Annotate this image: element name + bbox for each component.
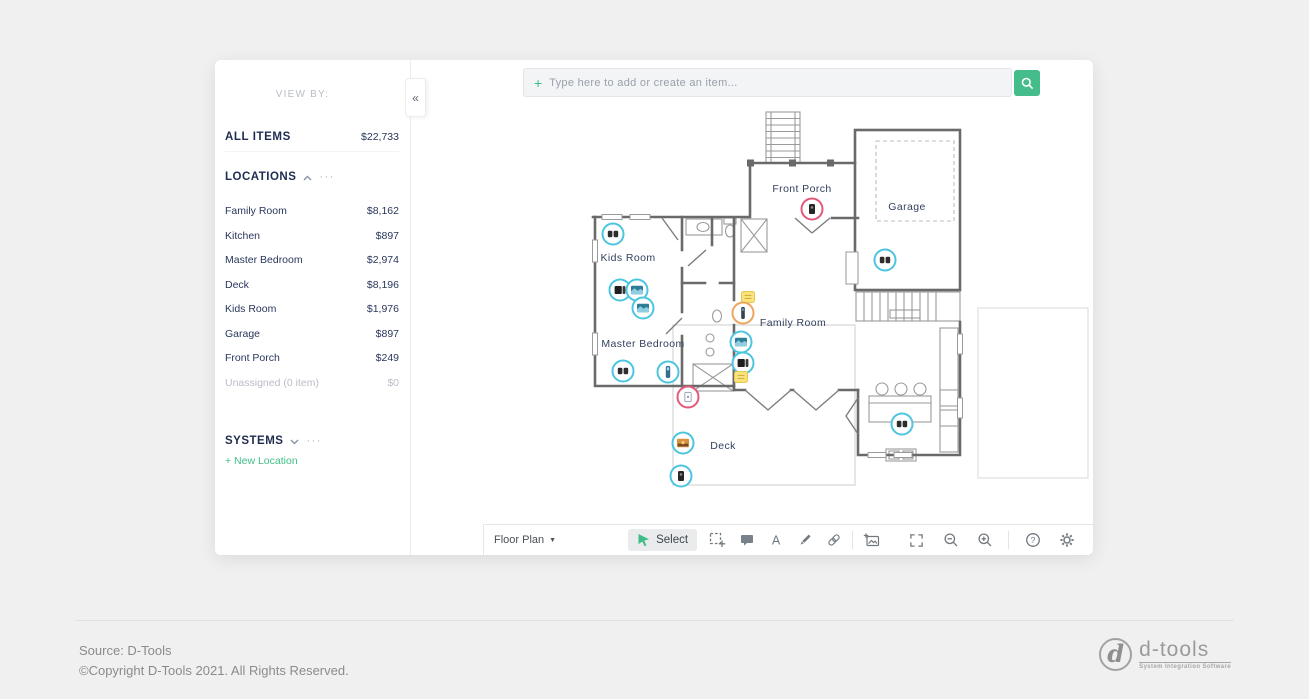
location-value: $897 <box>376 328 399 340</box>
view-by-label: VIEW BY: <box>215 89 390 100</box>
zoom-in-icon <box>977 532 993 548</box>
location-name: Front Porch <box>225 352 280 364</box>
item-marker-speakers[interactable] <box>603 224 624 245</box>
pencil-icon <box>797 532 813 548</box>
all-items-row[interactable]: ALL ITEMS $22,733 <box>225 122 399 152</box>
location-row-kids-room[interactable]: Kids Room $1,976 <box>225 297 399 322</box>
item-marker-speakers[interactable] <box>875 250 896 271</box>
app-window: VIEW BY: ALL ITEMS $22,733 LOCATIONS ···… <box>215 60 1093 555</box>
systems-menu-icon[interactable]: ··· <box>306 435 322 447</box>
item-marker-doorbell[interactable] <box>802 199 823 220</box>
systems-header: SYSTEMS ··· <box>225 432 322 450</box>
item-marker-doorbell[interactable] <box>671 466 692 487</box>
all-items-value: $22,733 <box>361 131 399 143</box>
select-tool-button[interactable]: Select <box>628 529 697 551</box>
toolbar-separator <box>1008 531 1009 549</box>
location-value: $1,976 <box>367 303 399 315</box>
item-marker-tower[interactable] <box>658 362 679 383</box>
room-label-deck: Deck <box>710 440 736 452</box>
item-marker-keypad[interactable] <box>678 387 699 408</box>
location-value: $8,196 <box>367 279 399 291</box>
room-label-front-porch: Front Porch <box>772 183 831 195</box>
comment-tool-button[interactable] <box>732 528 761 552</box>
view-selector-label: Floor Plan <box>494 534 544 546</box>
location-name: Kitchen <box>225 230 260 242</box>
item-marker-device[interactable] <box>733 353 754 374</box>
text-tool-button[interactable]: A <box>761 528 790 552</box>
main-area: + Type here to add or create an item... <box>411 60 1093 555</box>
select-tool-label: Select <box>656 534 688 546</box>
add-image-button[interactable] <box>857 528 886 552</box>
location-name: Unassigned (0 item) <box>225 377 319 389</box>
location-row-family-room[interactable]: Family Room $8,162 <box>225 199 399 224</box>
svg-text:?: ? <box>1030 535 1035 545</box>
search-icon <box>1020 76 1035 91</box>
footer-credits: Source: D-Tools ©Copyright D-Tools 2021.… <box>79 641 349 680</box>
svg-text:A: A <box>771 534 780 548</box>
property-outline <box>978 308 1088 478</box>
location-name: Garage <box>225 328 260 340</box>
location-value: $249 <box>376 352 399 364</box>
location-row-deck[interactable]: Deck $8,196 <box>225 273 399 298</box>
location-row-unassigned[interactable]: Unassigned (0 item) $0 <box>225 371 399 396</box>
item-marker-tv[interactable] <box>633 298 654 319</box>
search-button[interactable] <box>1014 70 1040 96</box>
location-row-front-porch[interactable]: Front Porch $249 <box>225 346 399 371</box>
toolbar-separator <box>852 531 853 549</box>
comment-icon <box>739 532 755 548</box>
expand-icon <box>909 533 924 548</box>
location-value: $2,974 <box>367 254 399 266</box>
pencil-tool-button[interactable] <box>790 528 819 552</box>
chevron-down-icon: ▼ <box>549 537 556 544</box>
add-image-icon <box>863 532 880 548</box>
location-name: Deck <box>225 279 249 291</box>
locations-title: LOCATIONS <box>225 171 296 183</box>
fixtures <box>686 112 960 461</box>
marquee-add-tool-button[interactable] <box>703 528 732 552</box>
search-input[interactable]: + Type here to add or create an item... <box>523 68 1012 97</box>
dtools-logo-mark: d <box>1099 638 1132 671</box>
item-marker-speakers[interactable] <box>613 361 634 382</box>
link-icon <box>826 532 842 548</box>
toolbar-right-group: ? <box>902 528 1081 552</box>
footer-divider <box>75 620 1234 621</box>
location-name: Master Bedroom <box>225 254 303 266</box>
zoom-out-button[interactable] <box>936 528 965 552</box>
deck-outline <box>673 325 855 485</box>
room-label-garage: Garage <box>888 201 925 213</box>
location-row-kitchen[interactable]: Kitchen $897 <box>225 224 399 249</box>
room-label-family-room: Family Room <box>760 317 826 329</box>
note-marker[interactable] <box>735 372 748 383</box>
sidebar: VIEW BY: ALL ITEMS $22,733 LOCATIONS ···… <box>215 60 411 555</box>
settings-button[interactable] <box>1052 528 1081 552</box>
item-marker-speakers[interactable] <box>892 414 913 435</box>
location-value: $0 <box>387 377 399 389</box>
location-name: Family Room <box>225 205 287 217</box>
page-background: VIEW BY: ALL ITEMS $22,733 LOCATIONS ···… <box>0 0 1309 699</box>
note-marker[interactable] <box>742 292 755 303</box>
chevron-up-icon[interactable] <box>303 168 312 186</box>
sidebar-collapse-button[interactable]: « <box>405 78 426 117</box>
room-label-kids-room: Kids Room <box>601 252 656 264</box>
item-marker-tv_sunset[interactable] <box>673 433 694 454</box>
cursor-icon <box>637 533 650 547</box>
zoom-out-icon <box>943 532 959 548</box>
canvas-toolbar: Floor Plan ▼ Select <box>483 524 1093 555</box>
gear-icon <box>1059 532 1075 548</box>
all-items-label: ALL ITEMS <box>225 131 291 143</box>
text-tool-icon: A <box>768 532 784 548</box>
location-value: $897 <box>376 230 399 242</box>
locations-header: LOCATIONS ··· <box>225 168 335 186</box>
marquee-add-icon <box>709 532 726 549</box>
item-marker-tv[interactable] <box>731 332 752 353</box>
dtools-logo-wordmark: d-tools <box>1139 639 1231 663</box>
zoom-in-button[interactable] <box>970 528 999 552</box>
systems-title: SYSTEMS <box>225 435 283 447</box>
location-row-master-bedroom[interactable]: Master Bedroom $2,974 <box>225 248 399 273</box>
item-marker-tower_dark[interactable] <box>733 303 754 324</box>
fit-to-screen-button[interactable] <box>902 528 931 552</box>
locations-menu-icon[interactable]: ··· <box>319 171 335 183</box>
source-text: Source: D-Tools <box>79 641 349 661</box>
room-label-master-bedroom: Master Bedroom <box>601 338 684 350</box>
locations-list: Family Room $8,162 Kitchen $897 Master B… <box>225 199 399 395</box>
copyright-text: ©Copyright D-Tools 2021. All Rights Rese… <box>79 661 349 681</box>
location-name: Kids Room <box>225 303 276 315</box>
chevron-down-icon[interactable] <box>290 432 299 450</box>
plus-icon: + <box>534 76 542 90</box>
view-selector-dropdown[interactable]: Floor Plan ▼ <box>494 534 556 546</box>
help-button[interactable]: ? <box>1018 528 1047 552</box>
help-icon: ? <box>1025 532 1041 548</box>
dtools-logo: d d-tools System Integration Software <box>1099 638 1231 671</box>
dtools-logo-tagline: System Integration Software <box>1139 664 1231 670</box>
location-value: $8,162 <box>367 205 399 217</box>
link-tool-button[interactable] <box>819 528 848 552</box>
search-placeholder: Type here to add or create an item... <box>549 77 737 89</box>
new-location-button[interactable]: + New Location <box>225 455 298 467</box>
floorplan-canvas[interactable]: Front Porch Garage Kids Room Master Bedr… <box>480 100 1095 506</box>
location-row-garage[interactable]: Garage $897 <box>225 322 399 347</box>
